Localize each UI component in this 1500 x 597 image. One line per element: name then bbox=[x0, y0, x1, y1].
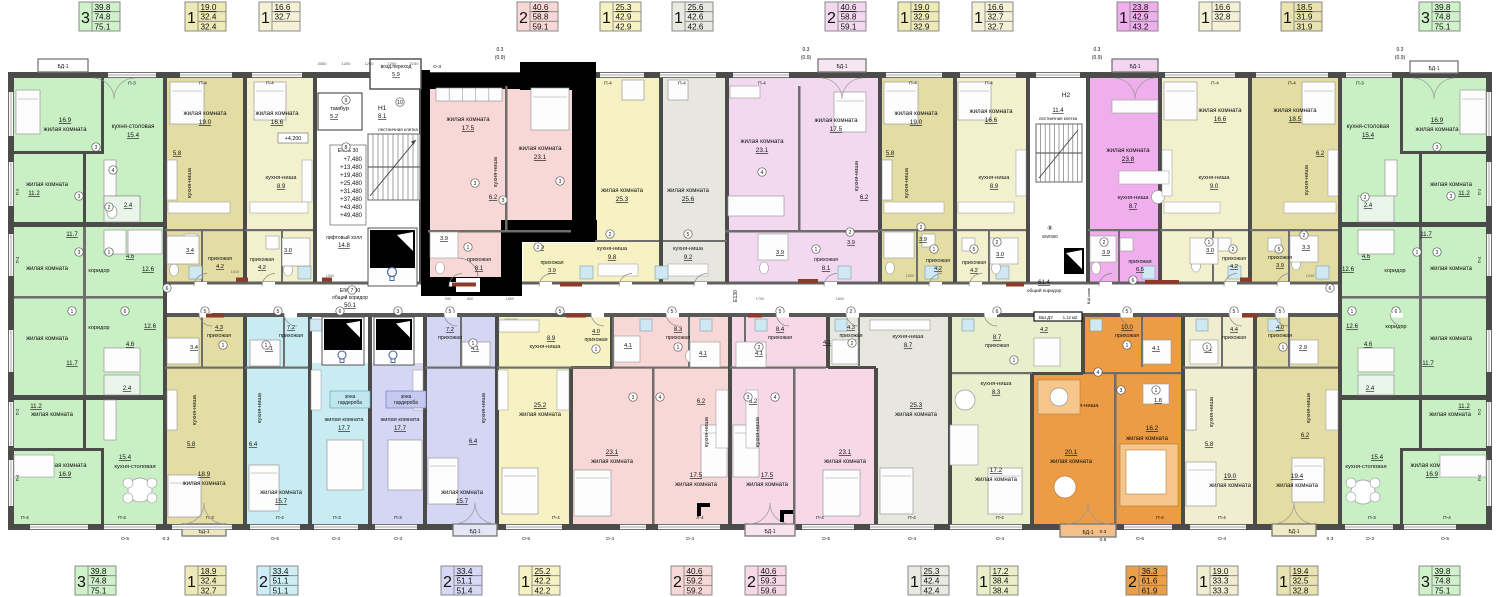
svg-text:БД-1: БД-1 bbox=[764, 529, 775, 535]
svg-text:14.8: 14.8 bbox=[338, 243, 350, 249]
svg-text:2: 2 bbox=[537, 245, 540, 251]
svg-text:19.0: 19.0 bbox=[1224, 473, 1237, 480]
svg-text:жилая комната: жилая комната bbox=[667, 188, 709, 194]
svg-text:4.2: 4.2 bbox=[216, 264, 224, 270]
svg-text:2: 2 bbox=[108, 205, 111, 211]
svg-text:23.8: 23.8 bbox=[1122, 156, 1135, 163]
svg-text:О-5: О-5 bbox=[522, 536, 530, 542]
svg-text:кухня-ниша: кухня-ниша bbox=[493, 156, 499, 187]
svg-text:прихожая: прихожая bbox=[438, 335, 462, 341]
svg-text:19.4: 19.4 bbox=[1291, 473, 1304, 480]
svg-text:7.2: 7.2 bbox=[446, 327, 454, 333]
svg-text:ВШ комн: ВШ комн bbox=[1086, 288, 1091, 304]
svg-text:П-4: П-4 bbox=[678, 81, 686, 87]
svg-text:31.9: 31.9 bbox=[1297, 22, 1313, 31]
svg-text:прихожая: прихожая bbox=[1222, 335, 1246, 341]
svg-text:коридор: коридор bbox=[88, 268, 109, 274]
svg-text:О-3: О-3 bbox=[1366, 536, 1374, 542]
svg-text:15.4: 15.4 bbox=[1371, 454, 1384, 461]
svg-text:П-4: П-4 bbox=[266, 81, 274, 87]
svg-text:2: 2 bbox=[609, 232, 612, 238]
svg-text:23.8: 23.8 bbox=[1133, 3, 1149, 12]
svg-text:25.6: 25.6 bbox=[682, 196, 695, 203]
svg-text:2: 2 bbox=[996, 240, 999, 246]
svg-text:3: 3 bbox=[474, 181, 477, 187]
svg-text:жилая комната: жилая комната bbox=[814, 117, 858, 124]
svg-text:16.6: 16.6 bbox=[271, 119, 284, 126]
svg-text:гардероба: гардероба bbox=[394, 400, 418, 406]
svg-text:(0.9): (0.9) bbox=[495, 55, 506, 61]
svg-text:6: 6 bbox=[124, 309, 127, 315]
svg-text:прихожая: прихожая bbox=[1115, 333, 1139, 339]
svg-text:15.4: 15.4 bbox=[119, 454, 132, 461]
svg-text:11.2: 11.2 bbox=[1458, 403, 1470, 410]
svg-text:кухня-ниша: кухня-ниша bbox=[1304, 164, 1310, 195]
svg-text:3: 3 bbox=[1450, 194, 1453, 200]
svg-text:11.7: 11.7 bbox=[1420, 231, 1432, 238]
svg-text:12.6: 12.6 bbox=[144, 323, 157, 330]
svg-text:+37,480: +37,480 bbox=[340, 197, 363, 203]
svg-text:П-4: П-4 bbox=[1477, 474, 1482, 481]
svg-text:жилая комната: жилая комната bbox=[26, 336, 68, 342]
svg-text:32.7: 32.7 bbox=[988, 13, 1004, 22]
svg-text:1: 1 bbox=[1119, 10, 1128, 27]
svg-text:74.8: 74.8 bbox=[1435, 13, 1451, 22]
svg-text:кухня-ниша: кухня-ниша bbox=[530, 344, 562, 350]
svg-text:1: 1 bbox=[261, 10, 270, 27]
svg-text:8.7: 8.7 bbox=[1129, 204, 1138, 210]
svg-text:18.5: 18.5 bbox=[1289, 116, 1302, 123]
svg-text:жилая комната: жилая комната bbox=[1106, 147, 1150, 154]
svg-text:8.9: 8.9 bbox=[547, 336, 556, 342]
svg-text:8: 8 bbox=[345, 145, 348, 151]
svg-text:жилая комната: жилая комната bbox=[1276, 483, 1318, 489]
svg-text:1: 1 bbox=[222, 343, 225, 349]
svg-text:23.1: 23.1 bbox=[756, 147, 769, 154]
svg-text:6.2: 6.2 bbox=[860, 195, 869, 201]
svg-text:П-4: П-4 bbox=[604, 81, 612, 87]
svg-text:2: 2 bbox=[519, 10, 528, 27]
svg-text:жилая комната: жилая комната bbox=[446, 116, 490, 123]
svg-text:39.8: 39.8 bbox=[1435, 567, 1451, 576]
svg-text:жилая комната: жилая комната bbox=[675, 482, 717, 488]
svg-text:0.3: 0.3 bbox=[803, 47, 810, 53]
svg-text:1: 1 bbox=[674, 10, 683, 27]
svg-text:0.9: 0.9 bbox=[1100, 537, 1107, 543]
svg-text:15.4: 15.4 bbox=[1362, 132, 1375, 139]
svg-text:кухня-ниша: кухня-ниша bbox=[755, 416, 761, 447]
svg-text:П-4: П-4 bbox=[909, 81, 917, 87]
svg-text:32.8: 32.8 bbox=[1215, 13, 1231, 22]
svg-text:(0.9): (0.9) bbox=[1092, 55, 1103, 61]
svg-text:БД-1: БД-1 bbox=[469, 529, 480, 535]
svg-text:15.7: 15.7 bbox=[275, 498, 288, 505]
svg-text:51.1: 51.1 bbox=[457, 577, 473, 586]
svg-text:6.2: 6.2 bbox=[697, 399, 706, 405]
svg-text:1750: 1750 bbox=[756, 297, 764, 301]
svg-text:прихожая: прихожая bbox=[962, 260, 986, 266]
svg-text:2: 2 bbox=[1128, 574, 1137, 591]
svg-text:18.9: 18.9 bbox=[201, 567, 217, 576]
svg-text:2150: 2150 bbox=[410, 61, 420, 66]
svg-text:П-4: П-4 bbox=[908, 515, 916, 521]
svg-text:кухня-столовая: кухня-столовая bbox=[1347, 124, 1390, 130]
svg-text:1040: 1040 bbox=[1306, 274, 1314, 278]
svg-text:1: 1 bbox=[521, 574, 530, 591]
svg-text:16.6: 16.6 bbox=[985, 117, 998, 124]
svg-text:74.8: 74.8 bbox=[91, 577, 107, 586]
svg-text:33.3: 33.3 bbox=[1213, 586, 1229, 595]
svg-text:11.2: 11.2 bbox=[30, 403, 42, 410]
svg-text:5: 5 bbox=[687, 232, 690, 238]
svg-text:3.3: 3.3 bbox=[1302, 245, 1310, 251]
svg-text:3: 3 bbox=[78, 194, 81, 200]
svg-text:4.3: 4.3 bbox=[847, 325, 855, 331]
svg-text:8.3: 8.3 bbox=[992, 390, 1001, 396]
svg-text:32.7: 32.7 bbox=[988, 22, 1004, 31]
svg-text:3: 3 bbox=[1421, 574, 1430, 591]
svg-text:74.8: 74.8 bbox=[95, 13, 111, 22]
svg-text:3: 3 bbox=[77, 574, 86, 591]
svg-text:6: 6 bbox=[339, 309, 342, 315]
svg-text:О-5: О-5 bbox=[1441, 536, 1449, 542]
svg-text:1810: 1810 bbox=[231, 270, 239, 274]
svg-text:7: 7 bbox=[351, 288, 354, 294]
svg-text:П-4: П-4 bbox=[21, 515, 29, 521]
svg-text:1: 1 bbox=[1416, 250, 1419, 256]
svg-text:кухня-ниша: кухня-ниша bbox=[981, 381, 1013, 387]
svg-text:кухня-ниша: кухня-ниша bbox=[979, 175, 1011, 181]
svg-text:6: 6 bbox=[1329, 286, 1332, 292]
svg-text:1: 1 bbox=[1282, 345, 1285, 351]
svg-text:31.9: 31.9 bbox=[1297, 13, 1313, 22]
svg-text:19.0: 19.0 bbox=[199, 119, 212, 126]
svg-text:П-4: П-4 bbox=[15, 474, 20, 481]
svg-text:0.3: 0.3 bbox=[1094, 47, 1101, 53]
svg-text:5: 5 bbox=[277, 309, 280, 315]
svg-text:О-4: О-4 bbox=[1218, 536, 1226, 542]
svg-text:кухня-ниша: кухня-ниша bbox=[1306, 392, 1312, 423]
svg-text:П-4: П-4 bbox=[276, 515, 284, 521]
svg-text:1: 1 bbox=[815, 247, 818, 253]
svg-text:кухня-столовая: кухня-столовая bbox=[112, 124, 155, 130]
svg-text:51.1: 51.1 bbox=[273, 577, 289, 586]
svg-text:16.9: 16.9 bbox=[1431, 117, 1444, 124]
svg-text:42.9: 42.9 bbox=[1133, 13, 1149, 22]
svg-text:5.2: 5.2 bbox=[330, 114, 338, 120]
svg-text:жилая комната: жилая комната bbox=[969, 108, 1013, 115]
svg-text:25.3: 25.3 bbox=[616, 3, 632, 12]
svg-text:прихожая: прихожая bbox=[208, 256, 232, 262]
svg-text:5.8: 5.8 bbox=[1205, 442, 1214, 448]
svg-text:1: 1 bbox=[187, 574, 196, 591]
svg-text:1500: 1500 bbox=[906, 274, 914, 278]
svg-text:О-4: О-4 bbox=[908, 536, 916, 542]
svg-text:39.8: 39.8 bbox=[91, 567, 107, 576]
svg-text:11.4: 11.4 bbox=[1052, 108, 1064, 114]
svg-text:прихожая: прихожая bbox=[1268, 333, 1292, 339]
svg-text:9: 9 bbox=[345, 98, 348, 104]
svg-text:19.4: 19.4 bbox=[1293, 567, 1309, 576]
svg-text:1: 1 bbox=[1351, 309, 1354, 315]
svg-text:1: 1 bbox=[1283, 10, 1292, 27]
svg-text:1200: 1200 bbox=[365, 61, 375, 66]
svg-text:8.7: 8.7 bbox=[904, 343, 913, 349]
svg-text:(0.9): (0.9) bbox=[801, 55, 812, 61]
svg-text:1: 1 bbox=[1013, 358, 1016, 364]
svg-text:⑧: ⑧ bbox=[1047, 225, 1052, 232]
svg-text:17.5: 17.5 bbox=[462, 125, 475, 132]
svg-text:кухня-ниша: кухня-ниша bbox=[904, 167, 910, 198]
svg-text:2.9: 2.9 bbox=[1299, 345, 1307, 351]
svg-text:прихожая: прихожая bbox=[814, 257, 838, 263]
svg-text:16.9: 16.9 bbox=[59, 117, 72, 124]
svg-text:лифтовый холл: лифтовый холл bbox=[326, 234, 362, 241]
svg-text:16.9: 16.9 bbox=[1426, 471, 1439, 478]
svg-text:4.6: 4.6 bbox=[126, 254, 135, 260]
svg-text:0.3: 0.3 bbox=[497, 47, 504, 53]
svg-text:50.1: 50.1 bbox=[344, 303, 356, 309]
svg-text:прихожая: прихожая bbox=[1268, 255, 1292, 261]
svg-text:(0.9): (0.9) bbox=[1395, 55, 1406, 61]
svg-text:3: 3 bbox=[632, 395, 635, 401]
svg-text:П-2: П-2 bbox=[1477, 188, 1482, 195]
svg-text:32.9: 32.9 bbox=[914, 22, 930, 31]
svg-text:прихожая: прихожая bbox=[926, 258, 950, 264]
svg-text:11.2: 11.2 bbox=[28, 190, 40, 197]
svg-text:75.1: 75.1 bbox=[1435, 22, 1451, 31]
svg-text:11.7: 11.7 bbox=[66, 231, 78, 238]
svg-text:жилая комната: жилая комната bbox=[601, 188, 643, 194]
svg-text:23.1: 23.1 bbox=[839, 449, 852, 456]
svg-text:42.6: 42.6 bbox=[688, 22, 704, 31]
svg-text:8.1: 8.1 bbox=[378, 114, 387, 120]
svg-text:жилая комната: жилая комната bbox=[824, 459, 866, 465]
svg-text:32.7: 32.7 bbox=[275, 13, 291, 22]
svg-text:4.6: 4.6 bbox=[1362, 254, 1371, 260]
svg-text:6.2: 6.2 bbox=[1316, 151, 1325, 157]
svg-text:жилая комната: жилая комната bbox=[183, 110, 227, 117]
svg-text:прихожая: прихожая bbox=[207, 333, 231, 339]
svg-text:П-3: П-3 bbox=[1368, 515, 1376, 521]
svg-text:П-4: П-4 bbox=[1288, 81, 1296, 87]
svg-text:жилая комната: жилая комната bbox=[441, 490, 483, 496]
svg-text:О-4: О-4 bbox=[606, 536, 614, 542]
svg-text:2.4: 2.4 bbox=[1364, 203, 1373, 209]
svg-text:3: 3 bbox=[95, 145, 98, 151]
svg-text:3.9: 3.9 bbox=[919, 237, 927, 243]
svg-text:42.2: 42.2 bbox=[535, 586, 551, 595]
svg-text:0.3: 0.3 bbox=[163, 536, 170, 542]
svg-text:П-3: П-3 bbox=[394, 515, 402, 521]
svg-text:19.0: 19.0 bbox=[914, 3, 930, 12]
svg-text:23.1: 23.1 bbox=[534, 154, 547, 161]
svg-text:БД-1: БД-1 bbox=[198, 529, 209, 535]
svg-text:9.2: 9.2 bbox=[684, 255, 693, 261]
svg-text:6.2: 6.2 bbox=[489, 195, 498, 201]
svg-text:39.8: 39.8 bbox=[95, 3, 111, 12]
svg-text:О-5: О-5 bbox=[822, 536, 830, 542]
svg-text:3.4: 3.4 bbox=[186, 248, 195, 254]
svg-text:9.0: 9.0 bbox=[1210, 184, 1219, 190]
svg-text:25.2: 25.2 bbox=[535, 567, 551, 576]
svg-text:2: 2 bbox=[851, 341, 854, 347]
svg-text:32.7: 32.7 bbox=[201, 586, 217, 595]
svg-text:32.9: 32.9 bbox=[914, 13, 930, 22]
svg-text:EIWS60: EIWS60 bbox=[1042, 234, 1058, 239]
svg-text:H2: H2 bbox=[1062, 92, 1071, 99]
svg-text:2: 2 bbox=[1364, 195, 1367, 201]
svg-text:жилая комната: жилая комната bbox=[1429, 412, 1471, 418]
svg-text:П-4: П-4 bbox=[816, 515, 824, 521]
svg-text:18.9: 18.9 bbox=[198, 471, 211, 478]
svg-text:кухня-ниша: кухня-ниша bbox=[854, 160, 860, 191]
svg-text:4.3: 4.3 bbox=[215, 325, 223, 331]
svg-text:12.6: 12.6 bbox=[1346, 323, 1359, 330]
svg-text:П-2: П-2 bbox=[15, 408, 20, 415]
svg-text:6: 6 bbox=[166, 286, 169, 292]
svg-text:П-4: П-4 bbox=[552, 515, 560, 521]
svg-text:3: 3 bbox=[502, 198, 505, 204]
svg-text:5.9: 5.9 bbox=[392, 72, 400, 78]
svg-text:6.4: 6.4 bbox=[469, 439, 478, 445]
svg-text:2: 2 bbox=[849, 230, 852, 236]
svg-text:4.6: 4.6 bbox=[1364, 342, 1373, 348]
svg-text:прихожая: прихожая bbox=[540, 260, 563, 266]
svg-text:1: 1 bbox=[1208, 240, 1211, 246]
svg-text:32.8: 32.8 bbox=[1293, 586, 1309, 595]
svg-text:О-3: О-3 bbox=[433, 64, 441, 70]
svg-text:16.6: 16.6 bbox=[1215, 3, 1231, 12]
svg-text:прихожая: прихожая bbox=[584, 337, 607, 343]
svg-text:кухня-ниша: кухня-ниша bbox=[266, 175, 298, 181]
svg-text:2: 2 bbox=[758, 345, 761, 351]
svg-text:32.4: 32.4 bbox=[201, 577, 217, 586]
svg-text:61.4: 61.4 bbox=[1038, 280, 1050, 286]
svg-text:75.1: 75.1 bbox=[91, 586, 107, 595]
svg-text:1: 1 bbox=[1199, 574, 1208, 591]
svg-text:жилая комната: жилая комната bbox=[31, 412, 73, 418]
svg-text:БД-1: БД-1 bbox=[836, 64, 847, 70]
svg-text:жилая комната: жилая комната bbox=[975, 477, 1017, 483]
svg-text:3.0: 3.0 bbox=[284, 248, 292, 254]
svg-text:гардероба: гардероба bbox=[338, 400, 362, 406]
svg-text:43.2: 43.2 bbox=[1133, 22, 1149, 31]
svg-text:1: 1 bbox=[974, 10, 983, 27]
svg-text:+19,480: +19,480 bbox=[340, 173, 363, 179]
svg-text:П-3: П-3 bbox=[118, 515, 126, 521]
svg-text:+31,480: +31,480 bbox=[340, 189, 363, 195]
svg-text:59.2: 59.2 bbox=[687, 586, 703, 595]
svg-text:кухня-ниша: кухня-ниша bbox=[1199, 175, 1231, 181]
svg-text:4.1: 4.1 bbox=[624, 343, 632, 349]
svg-text:1: 1 bbox=[595, 347, 598, 353]
svg-text:жилая комната: жилая комната bbox=[26, 266, 68, 272]
svg-text:5: 5 bbox=[559, 309, 562, 315]
svg-text:58.8: 58.8 bbox=[841, 13, 857, 22]
svg-text:2: 2 bbox=[827, 10, 836, 27]
svg-text:5: 5 bbox=[973, 247, 976, 253]
svg-text:17.5: 17.5 bbox=[830, 126, 843, 133]
svg-text:1: 1 bbox=[187, 10, 196, 27]
svg-text:1: 1 bbox=[108, 250, 111, 256]
svg-text:П-3: П-3 bbox=[1356, 81, 1364, 87]
svg-text:1: 1 bbox=[1126, 343, 1129, 349]
svg-text:П-2: П-2 bbox=[15, 188, 20, 195]
svg-text:2: 2 bbox=[1232, 247, 1235, 253]
svg-text:38.4: 38.4 bbox=[993, 586, 1009, 595]
svg-text:32.4: 32.4 bbox=[201, 13, 217, 22]
svg-text:1.8: 1.8 bbox=[1154, 398, 1162, 404]
svg-text:2: 2 bbox=[443, 574, 452, 591]
svg-text:61.9: 61.9 bbox=[1142, 586, 1158, 595]
svg-text:4.2: 4.2 bbox=[970, 268, 978, 274]
svg-text:0.3: 0.3 bbox=[1397, 47, 1404, 53]
svg-text:3.0: 3.0 bbox=[996, 252, 1004, 258]
svg-text:ВШ ДУ: ВШ ДУ bbox=[1039, 315, 1053, 320]
svg-text:П-4: П-4 bbox=[1443, 515, 1451, 521]
svg-text:жилая комната: жилая комната bbox=[519, 412, 561, 418]
svg-text:17.7: 17.7 bbox=[394, 425, 407, 432]
svg-text:32.4: 32.4 bbox=[201, 22, 217, 31]
svg-text:17.2: 17.2 bbox=[990, 467, 1003, 474]
svg-text:П-4: П-4 bbox=[15, 256, 20, 263]
svg-text:1: 1 bbox=[1279, 574, 1288, 591]
svg-text:8.9: 8.9 bbox=[990, 184, 999, 190]
svg-text:58.8: 58.8 bbox=[533, 13, 549, 22]
svg-text:+7,480: +7,480 bbox=[343, 157, 362, 163]
svg-text:4.1: 4.1 bbox=[823, 340, 831, 346]
svg-text:42.4: 42.4 bbox=[924, 577, 940, 586]
svg-text:4.2: 4.2 bbox=[258, 265, 266, 271]
svg-text:П-4: П-4 bbox=[1218, 515, 1226, 521]
svg-text:жилая комната: жилая комната bbox=[43, 126, 87, 133]
svg-text:20.1: 20.1 bbox=[1065, 449, 1078, 456]
svg-text:17.2: 17.2 bbox=[993, 567, 1009, 576]
svg-text:жилая комната: жилая комната bbox=[255, 110, 299, 117]
svg-text:1200: 1200 bbox=[342, 61, 352, 66]
svg-text:жилая комната: жилая комната bbox=[1273, 107, 1317, 114]
svg-text:6.4: 6.4 bbox=[249, 442, 258, 448]
svg-text:3.9: 3.9 bbox=[548, 268, 556, 274]
svg-text:общий коридор: общий коридор bbox=[332, 294, 368, 301]
svg-text:прихожая: прихожая bbox=[1222, 256, 1246, 262]
svg-text:4.1: 4.1 bbox=[1152, 346, 1160, 352]
svg-text:4: 4 bbox=[774, 395, 777, 401]
svg-text:кухня-ниша: кухня-ниша bbox=[192, 394, 198, 425]
svg-text:25.6: 25.6 bbox=[688, 3, 704, 12]
svg-text:прихожая: прихожая bbox=[985, 343, 1009, 349]
svg-text:2: 2 bbox=[673, 574, 682, 591]
svg-text:40.6: 40.6 bbox=[841, 3, 857, 12]
svg-text:П-4: П-4 bbox=[996, 515, 1004, 521]
svg-text:75.1: 75.1 bbox=[1435, 586, 1451, 595]
svg-text:1: 1 bbox=[1201, 10, 1210, 27]
svg-text:40.6: 40.6 bbox=[687, 567, 703, 576]
svg-text:2: 2 bbox=[920, 225, 923, 231]
svg-text:жилая комната: жилая комната bbox=[1209, 483, 1251, 489]
svg-text:2: 2 bbox=[1303, 233, 1306, 239]
svg-text:42.9: 42.9 bbox=[616, 22, 632, 31]
svg-text:51.1: 51.1 bbox=[273, 586, 289, 595]
svg-text:3: 3 bbox=[1436, 250, 1439, 256]
svg-text:8.9: 8.9 bbox=[277, 184, 286, 190]
svg-text:42.4: 42.4 bbox=[924, 586, 940, 595]
svg-text:жилая комната: жилая комната bbox=[518, 145, 562, 152]
svg-text:прихожая: прихожая bbox=[666, 335, 690, 341]
svg-text:1: 1 bbox=[910, 574, 919, 591]
svg-text:61.6: 61.6 bbox=[1142, 577, 1158, 586]
